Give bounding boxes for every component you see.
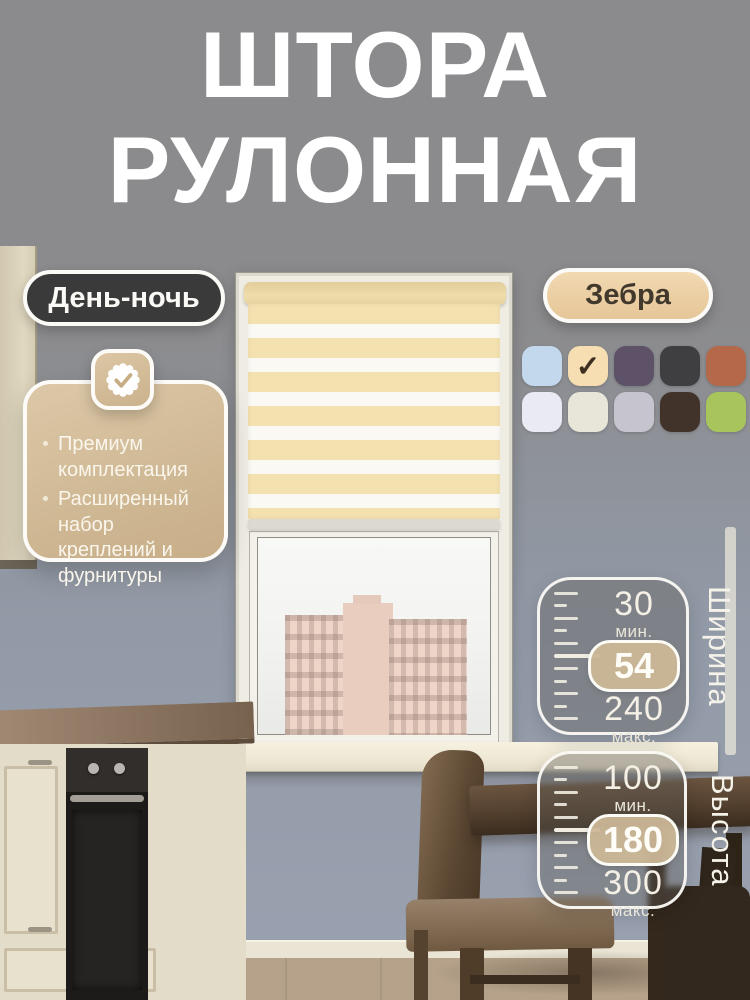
height-current-value: 180 — [587, 814, 679, 866]
ruler-tick — [554, 866, 578, 869]
height-min-value: 100 — [603, 761, 663, 795]
ruler-tick — [554, 816, 578, 819]
cabinet-door-panel — [4, 766, 58, 934]
product-image: ШТОРА РУЛОННАЯ День-ночь Зебра ✓ Премиум… — [0, 0, 750, 1000]
title-line-2: РУЛОННАЯ — [0, 117, 750, 222]
ruler-tick — [554, 803, 567, 806]
width-min: 30 мин. — [614, 587, 654, 640]
width-min-unit: мин. — [615, 623, 652, 640]
width-max: 240 макс. — [604, 692, 664, 745]
height-spec-badge: 100 мин. 180 300 макс. — [537, 751, 687, 909]
height-max: 300 макс. — [603, 866, 663, 919]
second-chair — [660, 886, 750, 1000]
ruler-tick — [554, 778, 567, 781]
feature-item: Расширенный набор креплений и фурнитуры — [43, 487, 210, 589]
height-axis-label: Высота — [704, 774, 740, 886]
oven-control-panel — [66, 748, 148, 792]
cabinet-handle — [28, 927, 52, 932]
height-max-value: 300 — [603, 866, 663, 900]
ruler-tick — [554, 854, 567, 857]
ruler-tick — [554, 791, 578, 794]
color-swatch — [522, 392, 562, 432]
blind-bottom-bar — [248, 519, 500, 529]
height-min-unit: мин. — [614, 797, 651, 814]
ruler-tick — [554, 891, 578, 894]
city-building — [389, 619, 467, 735]
swatch-grid: ✓ — [522, 346, 746, 432]
check-icon: ✓ — [568, 346, 608, 386]
color-swatch — [706, 392, 746, 432]
ruler-tick — [554, 592, 578, 595]
cabinet-underside — [0, 560, 37, 569]
feature-text: Расширенный набор креплений и фурнитуры — [58, 487, 210, 589]
ruler-tick — [554, 642, 578, 645]
width-min-value: 30 — [614, 587, 654, 621]
chair-crossbar — [470, 975, 580, 984]
quality-badge — [91, 349, 154, 410]
ruler-tick — [554, 667, 578, 670]
color-swatch — [568, 392, 608, 432]
oven-knob — [114, 763, 125, 774]
oven-handle — [70, 795, 144, 802]
width-max-value: 240 — [604, 692, 664, 726]
width-axis-label: Ширина — [701, 586, 737, 707]
color-swatch — [614, 392, 654, 432]
ruler-tick — [554, 680, 567, 683]
title-line-1: ШТОРА — [0, 12, 750, 117]
chair-leg — [460, 948, 484, 1000]
oven-knob — [88, 763, 99, 774]
selected-color-swatch: ✓ — [568, 346, 608, 386]
color-swatch — [614, 346, 654, 386]
ruler-tick — [554, 705, 567, 708]
quality-seal-icon — [103, 360, 143, 400]
ruler-tick — [554, 879, 567, 882]
color-swatch — [522, 346, 562, 386]
width-spec-badge: 30 мин. 54 240 макс. — [537, 577, 689, 735]
ruler-tick — [554, 617, 578, 620]
chair-leg — [414, 930, 428, 1000]
feature-list: Премиум комплектацияРасширенный набор кр… — [43, 432, 210, 590]
color-swatch — [660, 346, 700, 386]
height-max-unit: макс. — [611, 902, 656, 919]
cabinet-handle — [28, 760, 52, 765]
ruler-tick — [554, 692, 578, 695]
ruler-tick — [554, 841, 578, 844]
page-title: ШТОРА РУЛОННАЯ — [0, 12, 750, 223]
bullet-dot — [43, 496, 48, 501]
width-max-unit: макс. — [612, 728, 657, 745]
width-current-value: 54 — [588, 640, 680, 692]
window-glass — [257, 537, 491, 735]
bullet-dot — [43, 441, 48, 446]
blind-cassette — [244, 282, 506, 305]
tag-day-night: День-ночь — [23, 270, 225, 326]
ruler-tick — [554, 629, 567, 632]
chair-leg — [568, 948, 592, 1000]
ruler-tick — [554, 766, 578, 769]
color-swatch — [706, 346, 746, 386]
tag-zebra: Зебра — [543, 268, 713, 323]
zebra-blind-fabric — [248, 304, 500, 519]
feature-text: Премиум комплектация — [58, 432, 210, 483]
height-min: 100 мин. — [603, 761, 663, 814]
ruler-tick — [554, 717, 578, 720]
feature-item: Премиум комплектация — [43, 432, 210, 483]
oven-door — [72, 810, 142, 990]
city-building-tower — [343, 603, 393, 735]
building-parapet — [353, 595, 381, 604]
ruler-tick — [554, 604, 567, 607]
color-swatch — [660, 392, 700, 432]
